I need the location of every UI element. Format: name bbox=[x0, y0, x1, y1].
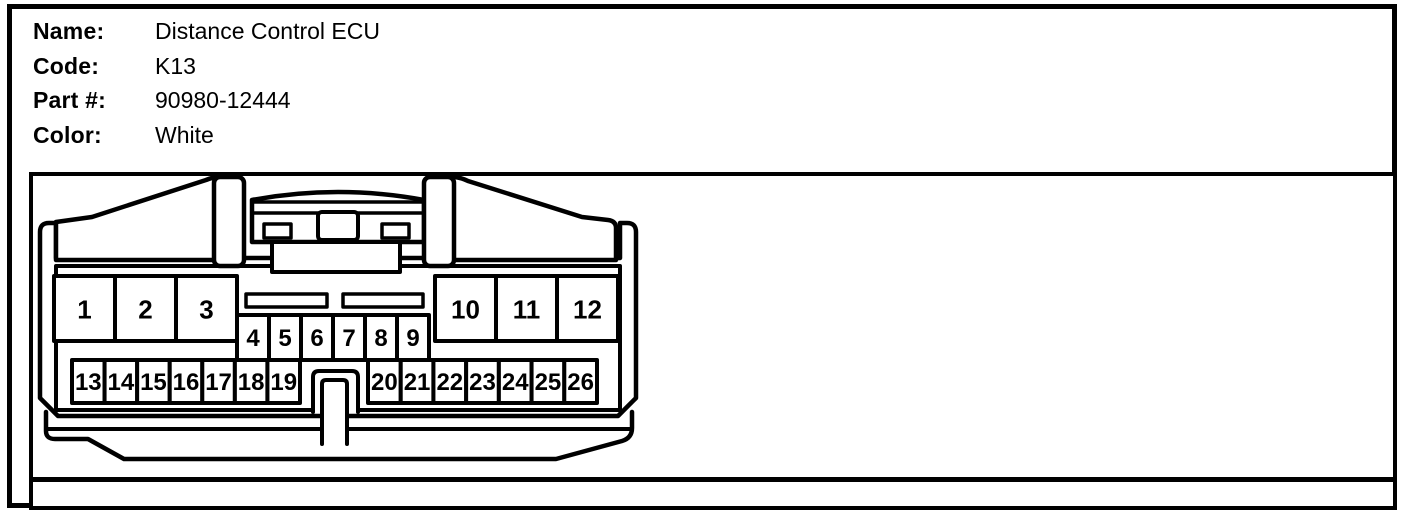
pin-number: 3 bbox=[199, 295, 213, 325]
latch-right-slot bbox=[382, 224, 409, 238]
pin-number: 10 bbox=[451, 295, 480, 325]
pin-number: 20 bbox=[371, 369, 398, 396]
pin-number: 19 bbox=[270, 369, 297, 396]
pin-number: 22 bbox=[436, 369, 463, 396]
pin-number: 18 bbox=[238, 369, 265, 396]
pin-number: 16 bbox=[173, 369, 200, 396]
pin-number: 2 bbox=[138, 295, 152, 325]
pin-number: 6 bbox=[310, 325, 323, 352]
pin-number: 7 bbox=[342, 325, 355, 352]
pin-number: 17 bbox=[205, 369, 232, 396]
connector-left-post bbox=[214, 177, 244, 266]
pin-number: 11 bbox=[513, 295, 541, 325]
pin-number: 26 bbox=[567, 369, 594, 396]
pin-number: 4 bbox=[246, 325, 260, 352]
pin-number: 9 bbox=[406, 325, 419, 352]
connector-right-post bbox=[424, 177, 454, 266]
pin-number: 5 bbox=[278, 325, 291, 352]
connector-left-wing bbox=[56, 177, 220, 260]
connector-center-plateau bbox=[272, 242, 400, 272]
connector-diagram: 1234567891011121314151617181920212223242… bbox=[0, 0, 1408, 524]
pin-number: 1 bbox=[77, 295, 91, 325]
connector-right-wing bbox=[448, 177, 616, 260]
latch-center-tab bbox=[318, 212, 358, 240]
connector-pinout-page: { "header": { "fields": [ { "label": "Na… bbox=[0, 0, 1408, 524]
latch-left-slot bbox=[264, 224, 291, 238]
pin-number: 21 bbox=[404, 369, 431, 396]
pin-number: 23 bbox=[469, 369, 496, 396]
key-slot-left bbox=[246, 294, 327, 307]
key-slot-right bbox=[343, 294, 423, 307]
pin-number: 15 bbox=[140, 369, 167, 396]
center-notch-channel bbox=[322, 380, 347, 444]
pin-number: 24 bbox=[502, 369, 529, 396]
pin-number: 12 bbox=[573, 295, 602, 325]
pin-number: 14 bbox=[108, 369, 135, 396]
pin-number: 8 bbox=[374, 325, 387, 352]
pin-number: 13 bbox=[75, 369, 102, 396]
pin-number: 25 bbox=[535, 369, 562, 396]
